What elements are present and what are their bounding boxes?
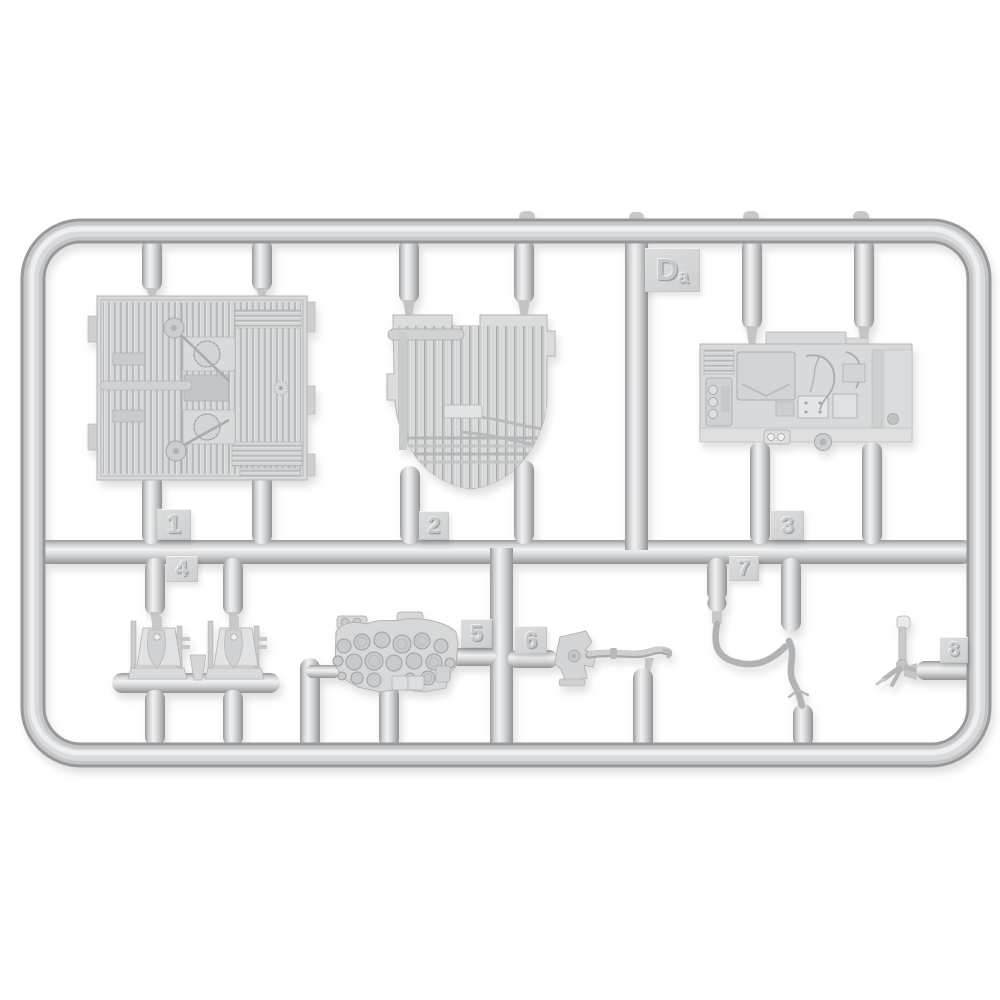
part-number-tab-8: 8 xyxy=(940,637,968,663)
sprue-code-sub: a xyxy=(678,267,689,289)
part-number-tab-4: 4 xyxy=(166,556,198,582)
part-number-8: 8 xyxy=(948,639,959,662)
sprue-code-main: D xyxy=(656,252,678,288)
part-1-engine-deck xyxy=(88,296,315,480)
part-number-5: 5 xyxy=(470,620,483,647)
part-number-tab-7: 7 xyxy=(729,556,759,581)
part-4-mount-brackets xyxy=(128,616,267,680)
part-number-tab-6: 6 xyxy=(515,626,547,654)
part-3-equipment-bulkhead xyxy=(700,332,912,451)
part-number-1: 1 xyxy=(167,509,181,540)
sprue-frame-graphic xyxy=(0,0,1000,1000)
part-number-7: 7 xyxy=(738,557,750,581)
sprue-assembly xyxy=(30,211,979,755)
sprue-photo-canvas: Da 1 2 3 4 5 6 7 8 xyxy=(0,0,1000,1000)
part-number-3: 3 xyxy=(781,512,794,539)
part-number-tab-5: 5 xyxy=(461,619,492,648)
part-number-tab-1: 1 xyxy=(157,509,191,540)
part-5-instrument-panel xyxy=(333,612,458,692)
sprue-code-tab: Da xyxy=(645,248,700,292)
part-number-2: 2 xyxy=(428,512,441,539)
part-7-flexible-conduit xyxy=(716,624,808,706)
part-number-6: 6 xyxy=(525,627,538,654)
part-number-4: 4 xyxy=(176,556,188,582)
part-number-tab-2: 2 xyxy=(419,511,449,540)
part-number-tab-3: 3 xyxy=(771,510,804,540)
